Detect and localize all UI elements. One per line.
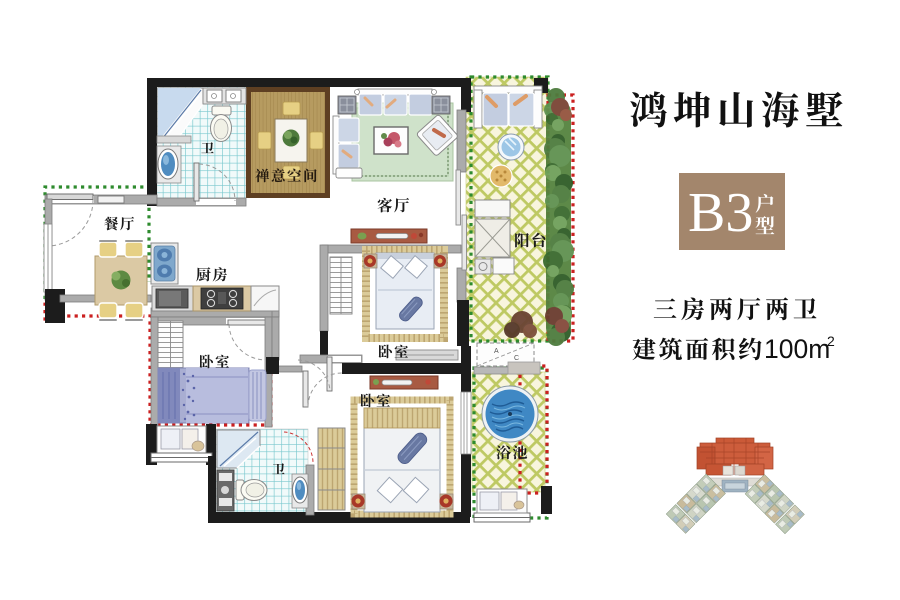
- svg-text:B3: B3: [688, 182, 753, 244]
- svg-text:C: C: [514, 355, 519, 362]
- svg-text:100m: 100m: [764, 334, 830, 364]
- svg-text:2: 2: [827, 333, 835, 349]
- svg-text:A: A: [494, 348, 499, 355]
